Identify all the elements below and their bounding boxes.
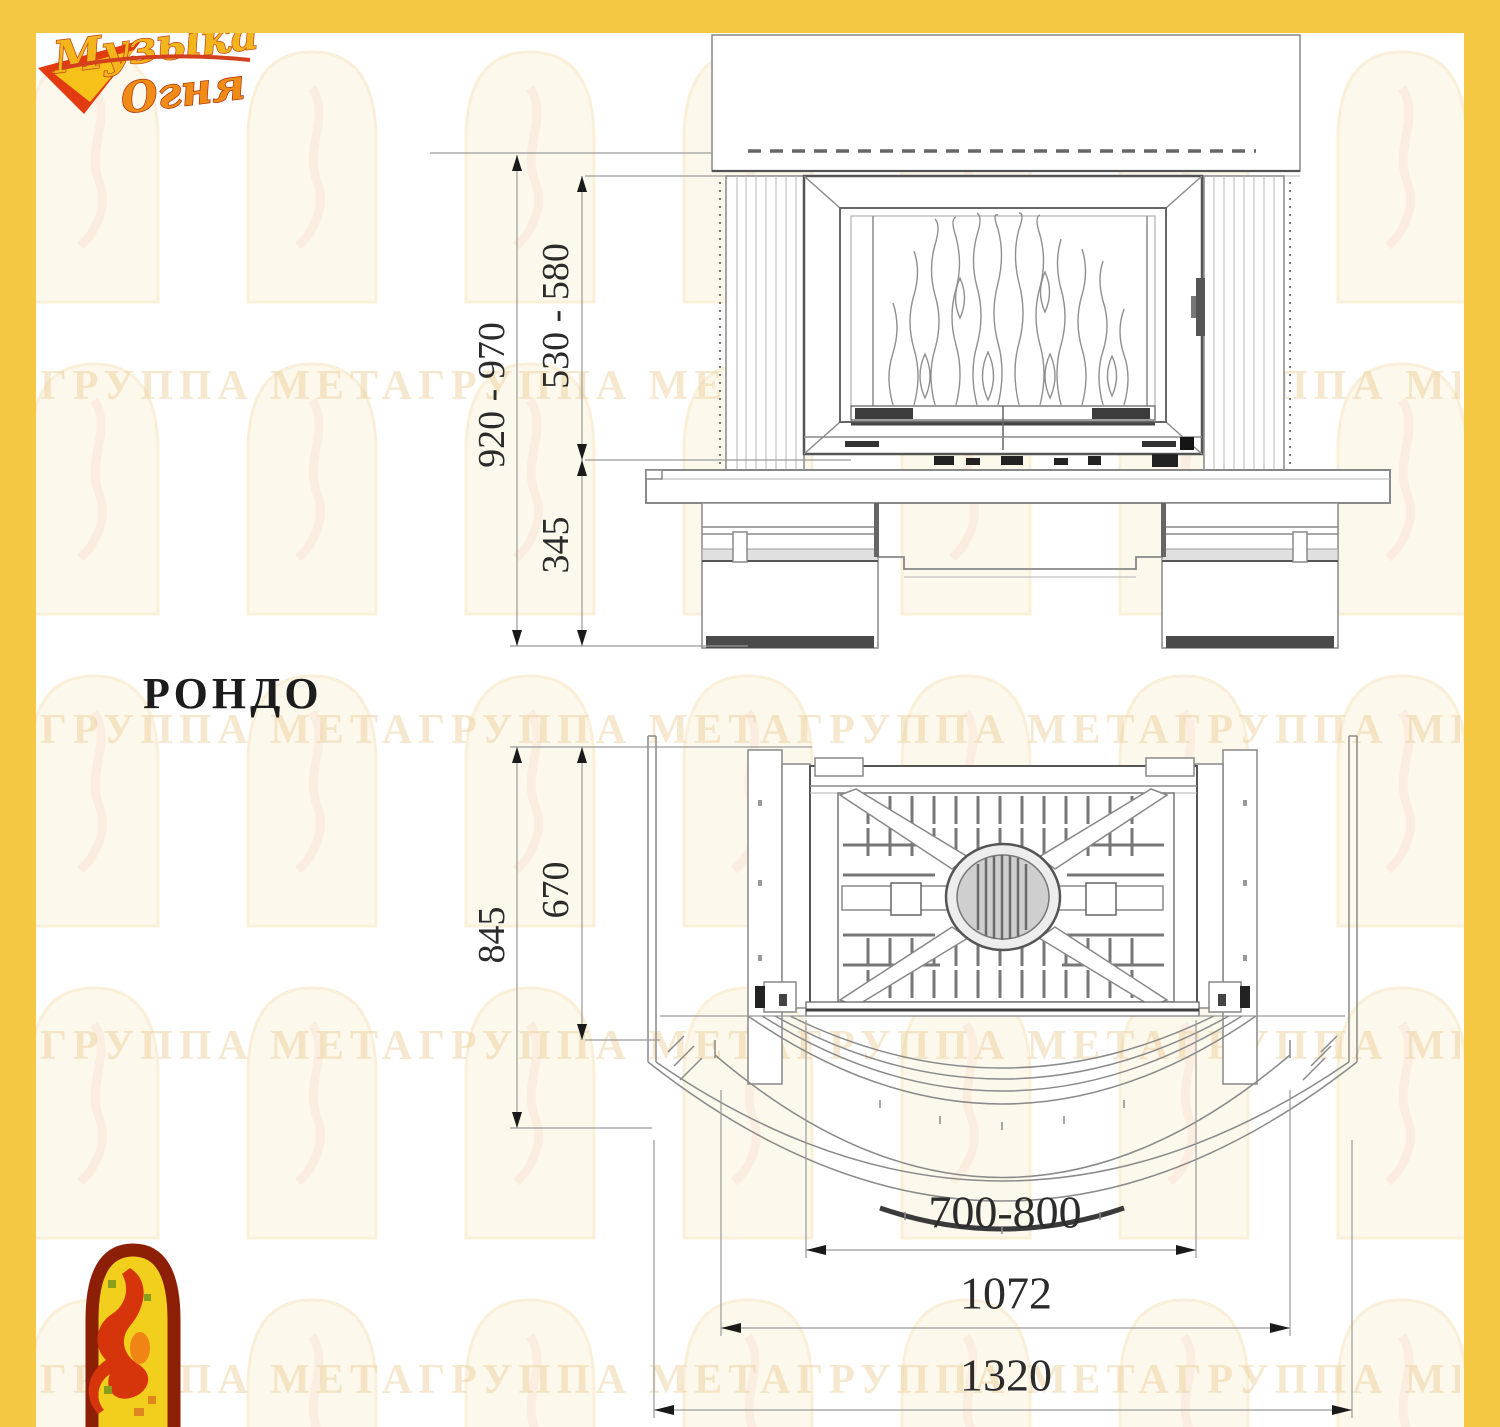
dimension-label-total-width: 1320: [960, 1349, 1052, 1402]
dimension-label-opening-width: 700-800: [928, 1186, 1081, 1239]
front-mantel-shelf: [646, 470, 1390, 503]
dimension-label-total-depth: 845: [470, 907, 514, 964]
front-door-sill: [804, 406, 1202, 467]
front-base: [702, 503, 1338, 648]
plan-right-pillar: [1195, 750, 1257, 1084]
dimension-label-total-height: 920 - 970: [470, 322, 514, 468]
dimension-label-inner-width: 1072: [960, 1267, 1052, 1320]
front-hood: [712, 35, 1300, 176]
plan-left-pillar: [748, 750, 810, 1084]
front-right-pillar: [1204, 176, 1290, 470]
frame-border-right: [1464, 0, 1500, 1427]
door-handle: [1196, 278, 1205, 336]
plan-firebox: [806, 758, 1199, 1016]
front-left-pillar: [720, 176, 804, 470]
flame-arch-icon: [78, 1236, 188, 1427]
dimension-label-hearth-height: 345: [534, 517, 578, 574]
frame-border-top: [0, 0, 1500, 33]
plan-view-drawing: [510, 736, 1357, 1418]
frame-border-left: [0, 0, 36, 1427]
dimension-label-opening-height: 530 - 580: [534, 243, 578, 389]
fireplace-spec-sheet: ГРУППА МЕТАГРУППА МЕТАГРУППА МЕТАГРУППА …: [0, 0, 1500, 1427]
dimension-label-inner-depth: 670: [534, 862, 578, 919]
page-title: РОНДО: [143, 668, 323, 719]
